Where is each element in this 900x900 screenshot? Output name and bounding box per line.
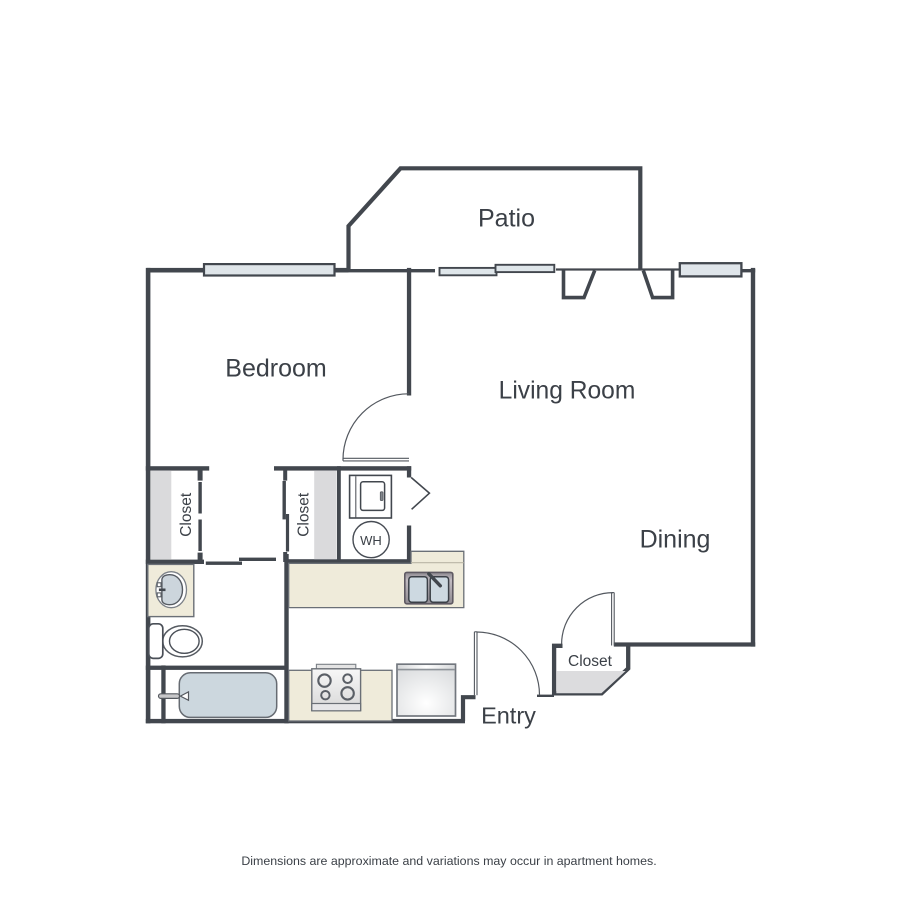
svg-text:Closet: Closet (178, 492, 195, 537)
svg-text:Closet: Closet (568, 653, 613, 670)
svg-text:Patio: Patio (478, 205, 535, 233)
svg-text:Dimensions are approximate and: Dimensions are approximate and variation… (241, 854, 656, 868)
svg-text:Dining: Dining (640, 526, 711, 554)
svg-text:Bedroom: Bedroom (225, 354, 326, 382)
svg-text:Closet: Closet (296, 492, 313, 537)
svg-text:WH: WH (360, 533, 382, 548)
svg-text:Living Room: Living Room (499, 378, 636, 405)
svg-text:Entry: Entry (481, 703, 536, 729)
